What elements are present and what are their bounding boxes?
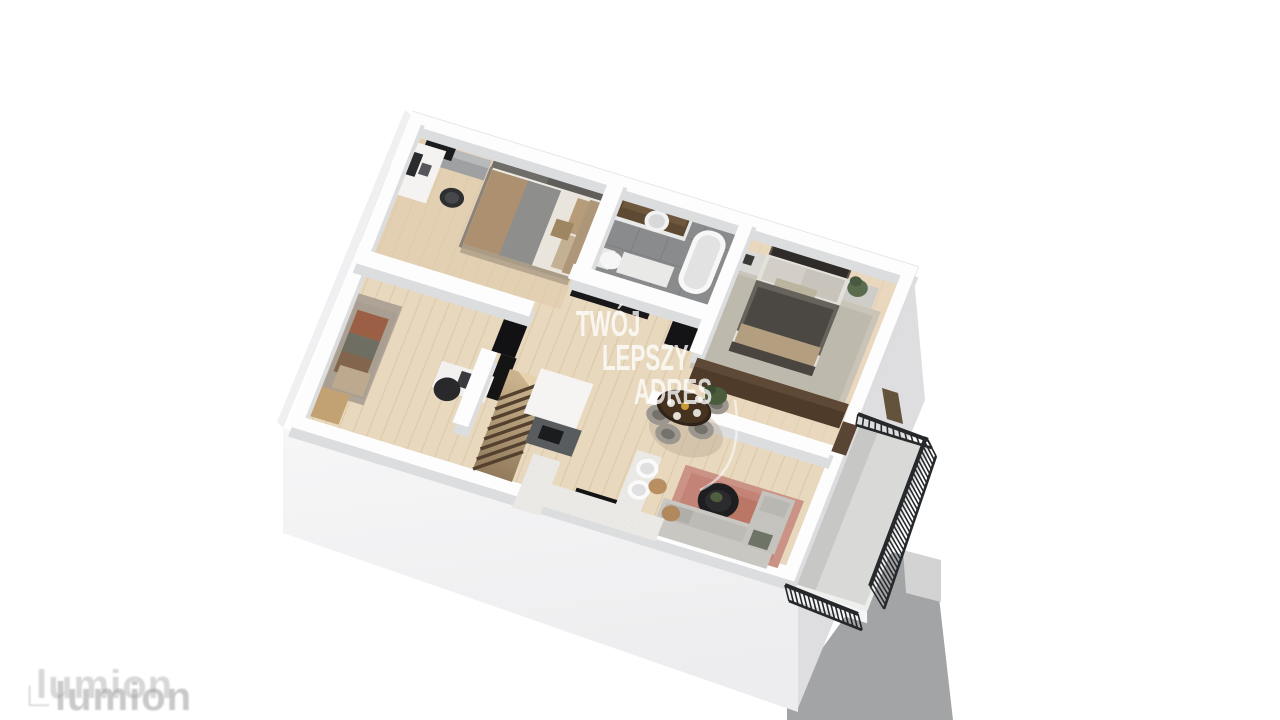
svg-text:lumion: lumion [36, 663, 173, 707]
svg-text:∟: ∟ [22, 676, 55, 714]
svg-text:ADRES: ADRES [634, 373, 712, 413]
